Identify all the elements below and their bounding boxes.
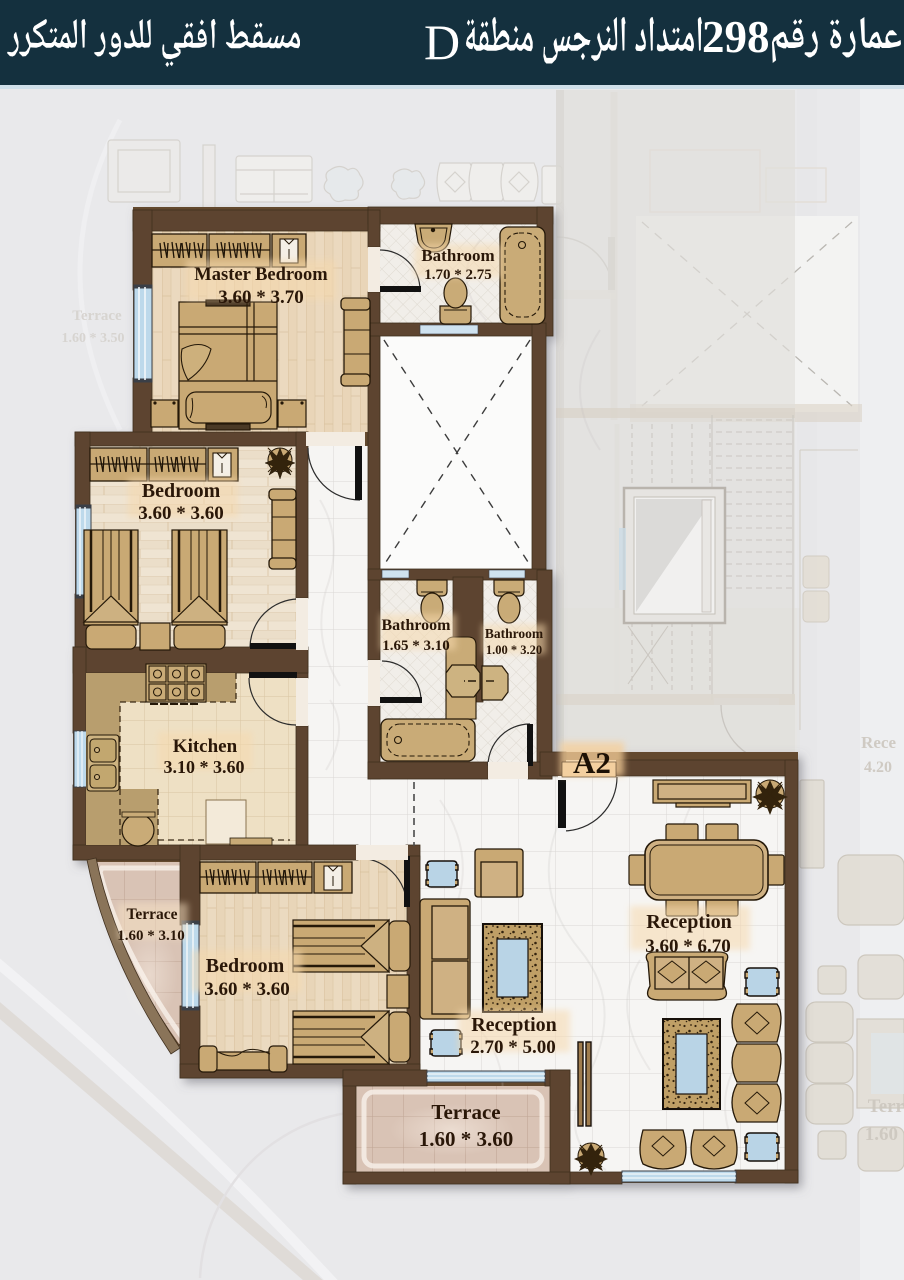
svg-text:Bathroom: Bathroom — [421, 246, 494, 265]
svg-text:1.60 * 3.60: 1.60 * 3.60 — [419, 1127, 514, 1151]
svg-text:Terrace: Terrace — [126, 906, 177, 923]
svg-text:D: D — [424, 14, 460, 70]
svg-text:2.70 * 5.00: 2.70 * 5.00 — [470, 1037, 556, 1058]
svg-text:1.60 * 3.50: 1.60 * 3.50 — [62, 331, 125, 346]
svg-text:Terrace: Terrace — [72, 308, 122, 324]
svg-text:1.65 * 3.10: 1.65 * 3.10 — [382, 638, 450, 654]
svg-text:A2: A2 — [573, 745, 611, 780]
svg-text:298: 298 — [702, 12, 770, 62]
svg-text:Bedroom: Bedroom — [206, 955, 285, 977]
svg-text:4.20: 4.20 — [864, 759, 892, 776]
svg-text:1.70 * 2.75: 1.70 * 2.75 — [424, 267, 492, 283]
svg-text:Reception: Reception — [471, 1014, 557, 1036]
svg-text:Terrace: Terrace — [431, 1100, 500, 1124]
svg-text:Kitchen: Kitchen — [173, 736, 238, 757]
svg-text:Master Bedroom: Master Bedroom — [194, 265, 328, 285]
svg-text:3.60 * 6.70: 3.60 * 6.70 — [645, 936, 731, 957]
svg-text:Terr: Terr — [868, 1096, 904, 1117]
svg-text:Bathroom: Bathroom — [485, 626, 544, 641]
svg-text:Rece: Rece — [861, 733, 896, 752]
svg-text:Reception: Reception — [646, 911, 732, 933]
svg-text:1.00 * 3.20: 1.00 * 3.20 — [486, 643, 542, 657]
svg-text:3.60 * 3.70: 3.60 * 3.70 — [218, 287, 304, 308]
svg-text:Bedroom: Bedroom — [142, 480, 221, 502]
svg-text:1.60 * 3.10: 1.60 * 3.10 — [117, 928, 185, 944]
svg-text:1.60: 1.60 — [865, 1124, 898, 1145]
svg-text:3.60 * 3.60: 3.60 * 3.60 — [138, 503, 224, 524]
svg-text:Bathroom: Bathroom — [381, 617, 451, 634]
svg-text:3.10 * 3.60: 3.10 * 3.60 — [164, 757, 245, 777]
svg-text:3.60 * 3.60: 3.60 * 3.60 — [204, 979, 290, 1000]
